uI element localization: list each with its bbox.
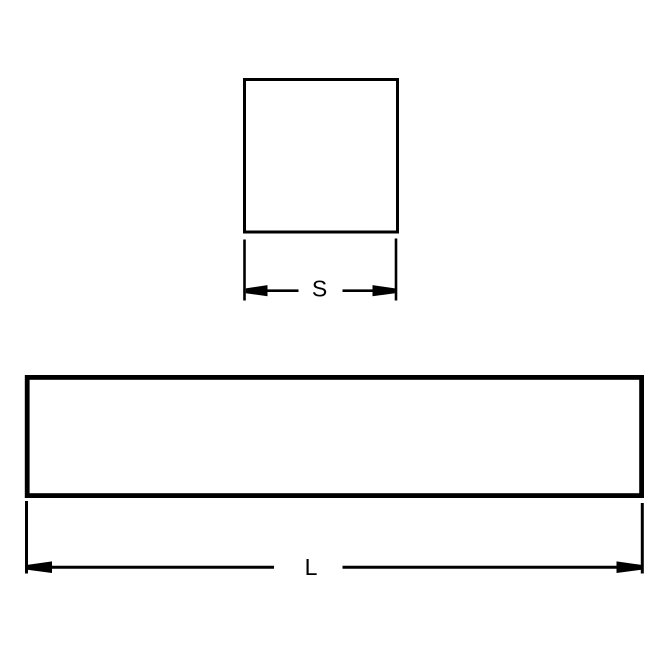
svg-text:L: L [305, 554, 318, 580]
svg-text:S: S [312, 276, 327, 302]
